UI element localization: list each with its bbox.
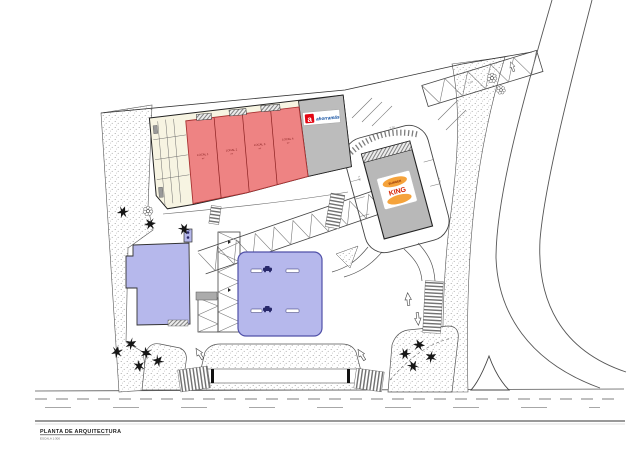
- parking-column-left: [198, 232, 240, 332]
- crosswalk: [209, 205, 221, 224]
- burger-king-block: BURGER KING: [340, 121, 454, 257]
- arrow-icon: [404, 292, 411, 305]
- canopy-structure: [238, 252, 322, 336]
- drawing-title: PLANTA DE ARQUITECTURA: [40, 429, 121, 435]
- berm-footpath: [204, 369, 358, 383]
- road-kerb-outer: [540, 0, 626, 372]
- bush-icon: [497, 86, 506, 95]
- arrow-icon: [414, 312, 421, 325]
- crosswalk: [423, 281, 444, 334]
- existing-building: [126, 243, 190, 325]
- entrance-mat: [168, 320, 188, 326]
- landscape-wedge: [336, 246, 358, 268]
- dim-label: 6.00: [357, 175, 362, 181]
- drawing-scale: ESCALA 1:300: [40, 437, 60, 441]
- title-block: PLANTA DE ARQUITECTURA ESCALA 1:300: [40, 429, 121, 441]
- landscape-island-right: [388, 326, 458, 392]
- arrow-icon: [193, 347, 205, 361]
- traffic-island-triangle-marking: [471, 356, 509, 390]
- retail-building: LOCAL 1 m² LOCAL 2 m² LOCAL 3 m² LOCAL 4…: [149, 95, 354, 210]
- bottom-road: [35, 389, 625, 424]
- crosswalk: [325, 193, 345, 229]
- pedestrian-ramp: [354, 368, 385, 392]
- pedestrian-ramp: [178, 366, 211, 392]
- side-road-kerbs: [496, 0, 626, 388]
- site-plan: BURGER KING 6.00 6.00 5.50 5.00: [0, 0, 640, 472]
- dim-label: 5.50: [389, 125, 396, 130]
- dim-label: 6.00: [437, 177, 442, 183]
- parking-arrow-icon: [228, 288, 231, 292]
- drawing-sheet: BURGER KING 6.00 6.00 5.50 5.00: [0, 0, 640, 472]
- refuse-area: [196, 292, 217, 300]
